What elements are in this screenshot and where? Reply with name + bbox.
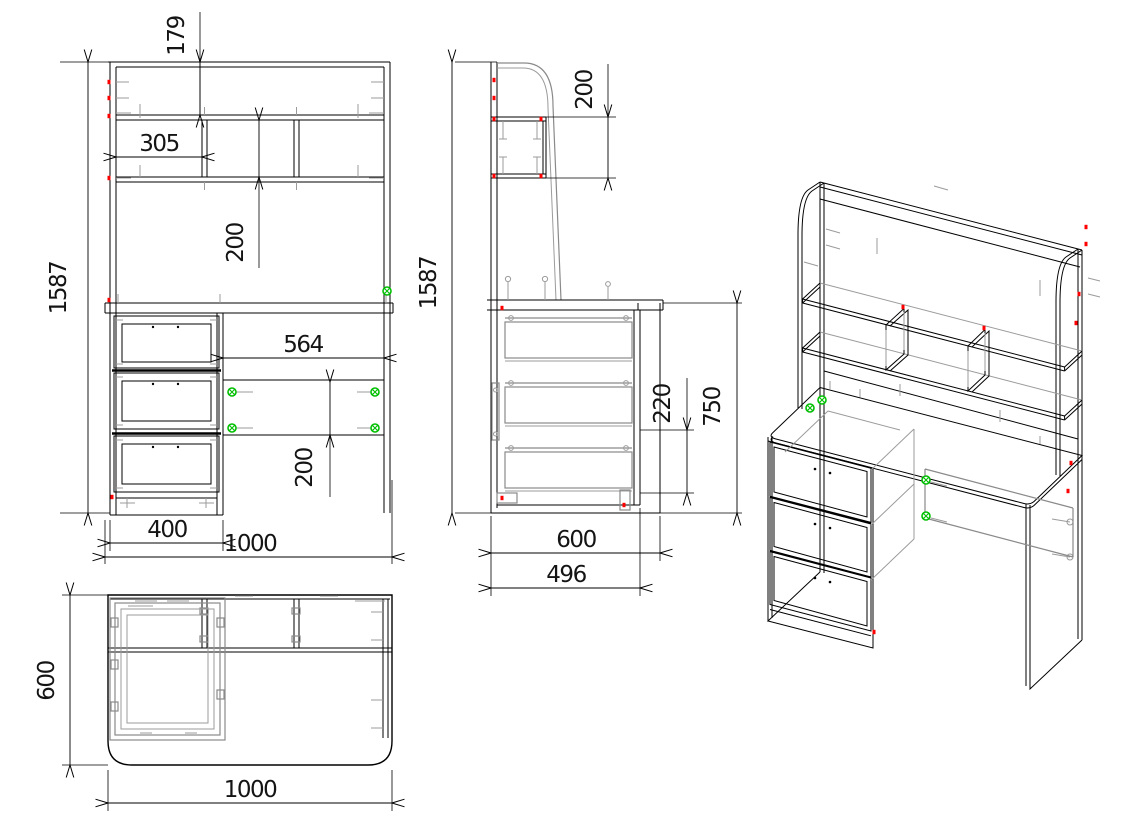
top-structure <box>108 595 392 765</box>
top-dimensions: 600 1000 <box>34 595 392 811</box>
side-dimensions: 1587 200 220 750 600 496 <box>416 62 737 596</box>
dim-side-drawer-pitch: 220 <box>650 383 676 423</box>
dim-front-shelf-height: 200 <box>223 222 249 262</box>
iso-shelves <box>803 283 1082 420</box>
top-view: 600 1000 <box>34 595 392 811</box>
iso-right-upright <box>934 186 1100 689</box>
iso-drawer-unit <box>768 411 914 648</box>
side-view: 1587 200 220 750 600 496 <box>416 62 742 596</box>
front-desktop <box>105 287 393 313</box>
dim-side-total-height: 1587 <box>416 257 442 310</box>
dim-side-total-depth: 600 <box>556 527 596 553</box>
dim-side-shelf-depth: 200 <box>572 69 598 109</box>
iso-desktop <box>771 381 1082 508</box>
dim-side-drawer-depth: 496 <box>546 562 586 588</box>
front-hutch <box>108 62 391 515</box>
front-view: 1587 179 305 200 564 200 400 1000 <box>46 12 393 564</box>
desk-assembly-drawing: 1587 179 305 200 564 200 400 1000 <box>0 0 1134 829</box>
dim-front-total-width: 1000 <box>224 531 277 557</box>
dim-front-top-offset: 179 <box>164 15 190 55</box>
front-drawer-unit <box>110 313 223 515</box>
side-structure <box>455 62 742 513</box>
dim-top-width: 1000 <box>224 777 277 803</box>
iso-back-panel <box>820 182 1082 439</box>
front-modesty-panel <box>223 380 384 435</box>
dim-front-opening-width: 564 <box>283 332 323 358</box>
technical-drawing-page: 1587 179 305 200 564 200 400 1000 <box>0 0 1134 829</box>
dim-top-depth: 600 <box>34 660 60 700</box>
dim-front-total-height: 1587 <box>46 262 72 315</box>
dim-side-desk-height: 750 <box>700 386 726 426</box>
dim-front-shelf-width: 305 <box>139 131 178 157</box>
isometric-view <box>768 182 1100 689</box>
iso-modesty-panel <box>922 469 1073 557</box>
dim-front-modesty-height: 200 <box>292 447 318 487</box>
dim-front-drawer-width: 400 <box>147 517 187 543</box>
